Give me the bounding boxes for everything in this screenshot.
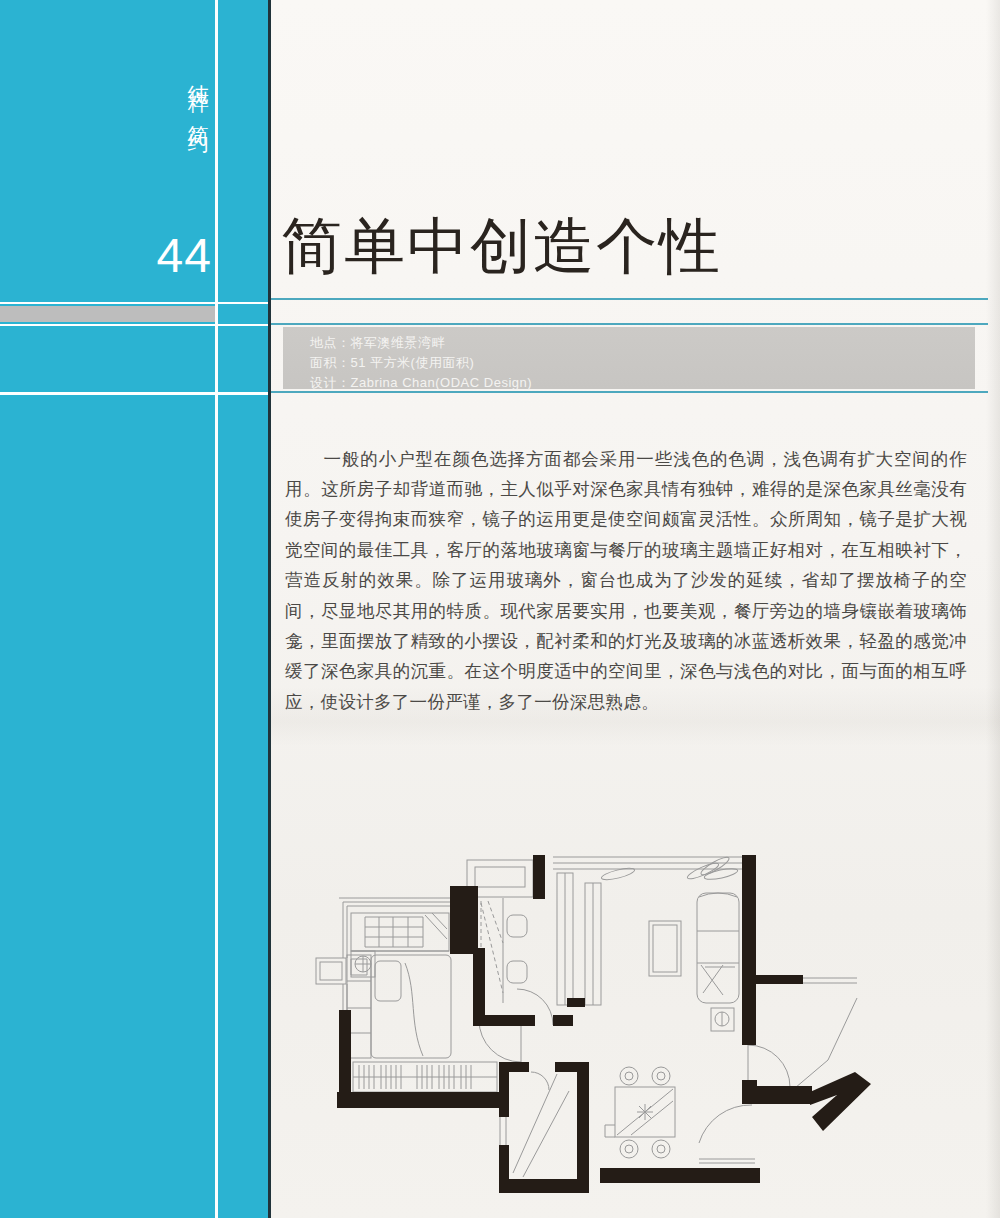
dining-set [605, 1067, 675, 1158]
coffee-table [649, 921, 681, 976]
book-page: { "sidebar": { "category": "纯粹·简约", "pag… [0, 0, 1000, 1218]
bathroom-interior [500, 1072, 569, 1177]
page-number: 44 [118, 228, 212, 283]
sidebar-rule-top [0, 302, 268, 304]
left-sidebar: 纯粹·简约 44 [0, 0, 268, 1218]
wardrobe [353, 1062, 497, 1092]
teal-rule-bottom [271, 391, 988, 393]
glass-feature-wall [557, 873, 573, 1005]
project-info-band: 地点：将军澳维景湾畔 面积：51 平方米(使用面积) 设计：Zabrina Ch… [283, 327, 975, 389]
sidebar-gray-band [0, 306, 215, 322]
tv-cabinet [585, 883, 601, 1005]
floor-lamp-symbol [711, 1008, 734, 1031]
sidebar-category-label: 纯粹·简约 [184, 68, 212, 121]
study-desk-chairs [481, 898, 527, 1021]
page-edge-shadow [986, 0, 1000, 1218]
info-line-area: 面积：51 平方米(使用面积) [310, 353, 975, 373]
floor-plan [305, 843, 880, 1198]
sidebar-divider-line [215, 0, 218, 1218]
living-window-plants [553, 855, 756, 882]
page-fold-edge [268, 0, 271, 1218]
kitchen-counter [351, 913, 449, 951]
teal-rule-mid [271, 323, 988, 325]
info-line-designer: 设计：Zabrina Chan(ODAC Design) [310, 373, 975, 393]
sidebar-rule-bottom [0, 392, 268, 395]
entry-chevron-wall [810, 1072, 871, 1131]
page-title: 简单中创造个性 [281, 206, 981, 288]
page-shading [271, 686, 1000, 746]
teal-rule-top [271, 298, 988, 300]
sofa [697, 893, 739, 1003]
bay-window [316, 958, 346, 984]
sidebar-rule-mid [0, 324, 268, 326]
body-paragraph: 一般的小户型在颜色选择方面都会采用一些浅色的色调，浅色调有扩大空间的作用。这所房… [285, 444, 967, 718]
info-line-location: 地点：将军澳维景湾畔 [310, 333, 975, 353]
kitchen-exterior-wall [339, 898, 453, 1010]
